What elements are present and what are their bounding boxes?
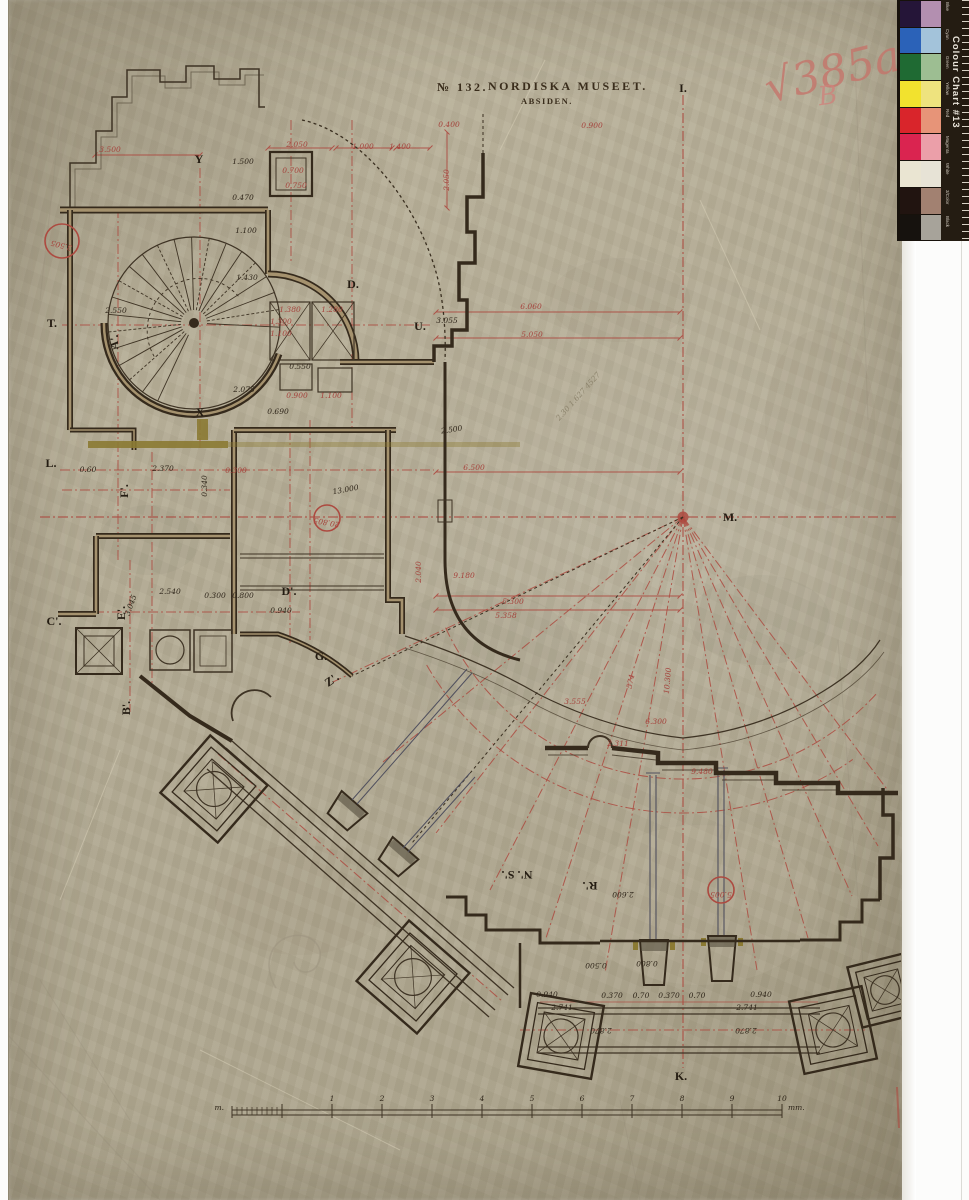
- swatch-solid: [900, 28, 921, 54]
- swatch-label: Cyan: [941, 29, 950, 55]
- scan-margin-line: [961, 241, 962, 1200]
- colour-swatch-row: [900, 188, 941, 214]
- swatch-tint: [921, 108, 941, 134]
- colour-swatch-row: [900, 54, 941, 80]
- colour-calibration-chart: BlueCyanGreenYellowRedMagentaWhite3/Colo…: [897, 0, 969, 241]
- swatch-tint: [921, 28, 941, 54]
- colour-chart-title: Colour Chart #13: [950, 36, 961, 186]
- colour-swatch-row: [900, 81, 941, 107]
- swatch-tint: [921, 215, 941, 241]
- colour-chart-ruler: [962, 0, 969, 241]
- swatch-solid: [900, 54, 921, 80]
- scanned-drawing-page: 12345678910m.mm. I.YXT.A'.D.U.L.F'.E'.C'…: [0, 0, 969, 1200]
- swatch-tint: [921, 54, 941, 80]
- colour-swatch-row: [900, 161, 941, 187]
- swatch-tint: [921, 188, 941, 214]
- swatch-label: Yellow: [941, 82, 950, 108]
- swatch-label: Blue: [941, 2, 950, 28]
- swatch-solid: [900, 108, 921, 134]
- swatch-label: Black: [941, 216, 950, 242]
- swatch-solid: [900, 215, 921, 241]
- swatch-label: Magenta: [941, 136, 950, 162]
- swatch-label: 3/Color: [941, 190, 950, 216]
- swatch-solid: [900, 1, 921, 27]
- swatch-label: Green: [941, 56, 950, 82]
- swatch-label: Red: [941, 109, 950, 135]
- colour-swatch-row: [900, 1, 941, 27]
- colour-swatch-row: [900, 28, 941, 54]
- swatch-tint: [921, 81, 941, 107]
- drawing-paper-sheet: [8, 0, 903, 1200]
- swatch-solid: [900, 161, 921, 187]
- colour-swatch-row: [900, 215, 941, 241]
- swatch-solid: [900, 81, 921, 107]
- swatch-tint: [921, 1, 941, 27]
- swatch-tint: [921, 161, 941, 187]
- colour-chart-label-strip: BlueCyanGreenYellowRedMagentaWhite3/Colo…: [941, 0, 962, 241]
- scan-margin: [902, 241, 916, 1200]
- swatch-solid: [900, 134, 921, 160]
- swatch-tint: [921, 134, 941, 160]
- colour-swatch-row: [900, 134, 941, 160]
- colour-swatch-row: [900, 108, 941, 134]
- swatch-label: White: [941, 163, 950, 189]
- swatch-solid: [900, 188, 921, 214]
